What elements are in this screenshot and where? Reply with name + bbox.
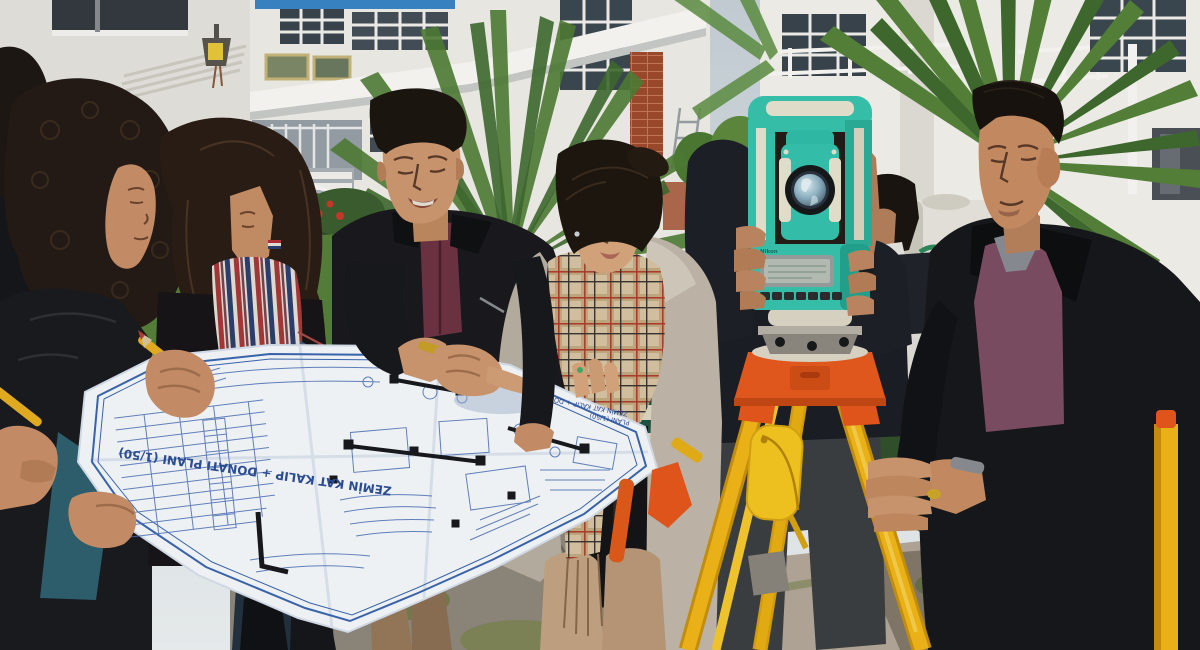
surveying-team-photo: PANAJA [0,0,1200,650]
vignette [0,0,1200,650]
photo-canvas: PANAJA [0,0,1200,650]
